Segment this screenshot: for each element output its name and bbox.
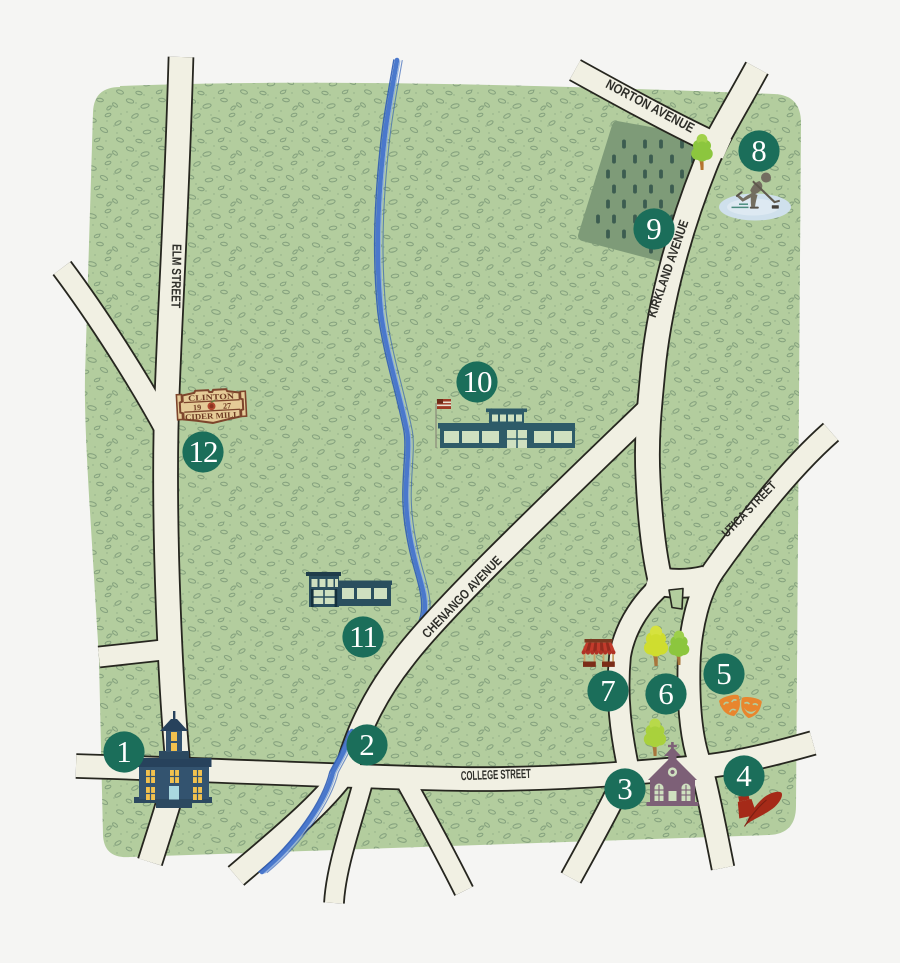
svg-text:6: 6 [658,676,674,711]
svg-text:11: 11 [349,619,377,654]
svg-text:7: 7 [600,673,616,708]
svg-text:19: 19 [193,403,202,412]
svg-text:9: 9 [646,211,662,246]
svg-text:8: 8 [751,133,767,168]
svg-text:4: 4 [736,758,752,793]
svg-text:3: 3 [617,771,633,806]
svg-text:ELM STREET: ELM STREET [168,244,184,308]
svg-text:COLLEGE STREET: COLLEGE STREET [461,766,532,783]
svg-text:5: 5 [716,656,732,691]
svg-text:2: 2 [359,727,375,762]
svg-text:10: 10 [463,364,493,399]
svg-text:12: 12 [189,434,218,469]
svg-text:27: 27 [223,401,232,410]
svg-text:1: 1 [116,734,132,769]
